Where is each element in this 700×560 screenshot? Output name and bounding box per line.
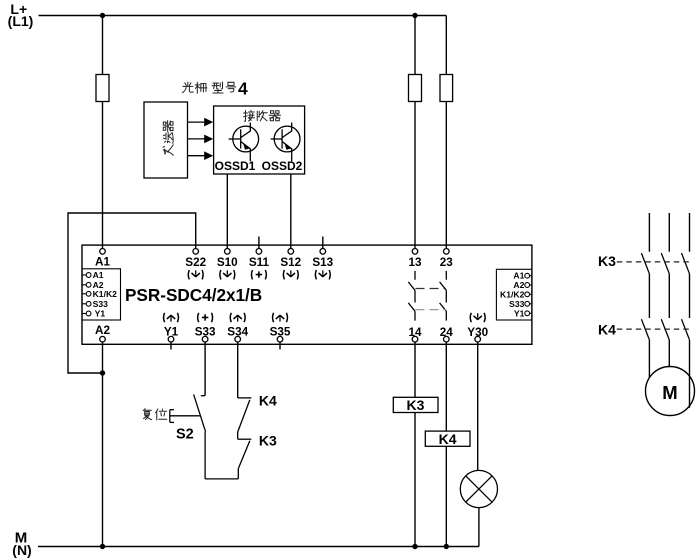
svg-text:K3: K3 [598,253,616,269]
svg-text:K4: K4 [439,431,457,447]
svg-text:S22: S22 [185,256,206,269]
svg-text:(L1): (L1) [8,13,34,29]
svg-text:A1: A1 [93,270,104,280]
svg-text:Y1: Y1 [164,325,179,338]
svg-text:K1/K2: K1/K2 [500,289,525,299]
svg-text:S35: S35 [270,325,291,338]
svg-text:OSSD2: OSSD2 [262,159,303,173]
svg-text:S34: S34 [227,325,248,338]
svg-text:K3: K3 [259,432,277,448]
svg-text:S33: S33 [195,325,216,338]
svg-text:K4: K4 [259,392,277,408]
svg-text:K4: K4 [598,321,616,337]
svg-text:4: 4 [238,78,248,98]
svg-text:S2: S2 [176,427,194,443]
svg-text:A2: A2 [95,324,110,337]
svg-text:S10: S10 [217,256,238,269]
svg-text:14: 14 [408,326,422,339]
svg-text:S11: S11 [249,256,270,269]
svg-text:13: 13 [408,256,422,269]
svg-text:M: M [662,382,677,403]
svg-text:Y1: Y1 [514,308,525,318]
svg-text:(N): (N) [12,542,31,558]
svg-text:OSSD1: OSSD1 [215,159,256,173]
svg-text:S12: S12 [280,256,301,269]
svg-text:23: 23 [440,256,454,269]
svg-text:S33: S33 [93,299,109,309]
svg-text:Y30: Y30 [467,326,488,339]
svg-text:24: 24 [440,326,454,339]
svg-text:S13: S13 [312,256,333,269]
svg-text:A1: A1 [95,255,110,268]
svg-text:K3: K3 [407,397,425,413]
svg-text:Y1: Y1 [95,309,106,319]
svg-text:K1/K2: K1/K2 [93,289,118,299]
svg-text:PSR-SDC4/2x1/B: PSR-SDC4/2x1/B [125,285,262,305]
svg-text:S33: S33 [509,299,525,309]
